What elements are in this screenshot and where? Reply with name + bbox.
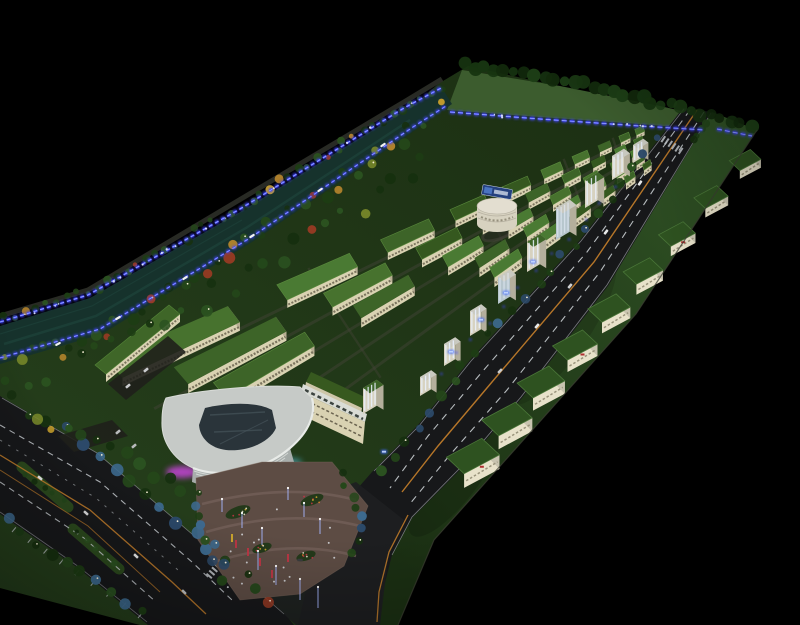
model-photo-stage (0, 0, 800, 625)
tree-light (82, 351, 84, 353)
pedestrian (276, 508, 278, 510)
street-led-dot (598, 202, 600, 204)
tree (438, 99, 445, 106)
flower-dot (262, 545, 264, 547)
tree (104, 552, 110, 558)
tree (368, 159, 377, 168)
tree (90, 342, 97, 349)
flower-dot (238, 514, 240, 516)
flower-dot (303, 496, 305, 498)
tree (191, 224, 199, 232)
led-sparkle (205, 228, 207, 230)
tree (191, 501, 200, 510)
tree (111, 464, 124, 477)
cylinder-roof (477, 198, 517, 214)
tree (127, 327, 136, 336)
tree (581, 225, 589, 233)
tree-light (177, 520, 179, 522)
pedestrian (232, 577, 234, 579)
model-photo (0, 0, 800, 625)
tree (59, 354, 66, 361)
led-sparkle (113, 280, 115, 282)
tree-light (585, 227, 587, 229)
tree (198, 222, 203, 227)
street-led-dot (440, 373, 442, 375)
tree (654, 134, 661, 141)
tree (138, 607, 146, 615)
led-sparkle (501, 114, 503, 116)
tree (4, 513, 15, 524)
led-sparkle (24, 314, 25, 315)
tree (201, 305, 213, 317)
tree (196, 490, 202, 496)
led-sparkle (55, 305, 56, 306)
yellow-banner (231, 534, 233, 542)
tree (32, 414, 43, 425)
blue-sign (479, 319, 483, 321)
tree (321, 219, 329, 227)
flower-dot (245, 507, 247, 509)
led-sparkle (166, 248, 168, 250)
led-sparkle (119, 277, 121, 279)
light-pole-top (287, 487, 289, 489)
tree (77, 336, 87, 346)
led-sparkle (142, 264, 144, 266)
street-led-dot (503, 305, 505, 307)
tree (93, 436, 101, 444)
flower-dot (257, 547, 259, 549)
tree (415, 153, 423, 161)
blue-sign (449, 351, 453, 353)
tree (77, 349, 86, 358)
tree (284, 205, 290, 211)
tree-light (359, 539, 361, 541)
tree-light (97, 577, 99, 579)
tree (200, 543, 212, 555)
tree (471, 349, 479, 357)
red-banner (271, 570, 273, 578)
tree (65, 344, 73, 352)
led-sparkle (161, 252, 163, 254)
tree (159, 320, 170, 331)
tree (245, 264, 253, 272)
flower-dot (318, 501, 320, 503)
led-sparkle (613, 123, 615, 125)
tree (111, 560, 118, 567)
tree (119, 598, 130, 609)
tree (169, 517, 182, 530)
tree (546, 269, 554, 277)
blue-sign (531, 261, 535, 263)
pedestrian (289, 576, 291, 578)
pedestrian (328, 542, 330, 544)
tree (25, 382, 33, 390)
light-pole-top (241, 512, 243, 514)
tree (399, 436, 409, 446)
tree (210, 540, 219, 549)
tree (121, 446, 133, 458)
tree (32, 541, 40, 549)
street-led-dot (535, 269, 537, 271)
tree (182, 280, 191, 289)
tree (337, 137, 345, 145)
tree (128, 313, 140, 325)
tree (416, 425, 424, 433)
light-pole-top (299, 578, 301, 580)
tree (195, 512, 203, 520)
flower-dot (265, 549, 267, 551)
tree (108, 336, 115, 343)
tree (146, 320, 154, 328)
light-pole-top (303, 502, 305, 504)
tree (337, 208, 343, 214)
tree (49, 490, 54, 495)
pedestrian (283, 567, 285, 569)
pedestrian (253, 541, 255, 543)
street-led-dot (489, 322, 491, 324)
led-sparkle (58, 303, 60, 305)
tree (496, 64, 509, 77)
light-pole-top (317, 586, 319, 588)
tree (594, 209, 603, 218)
tree-light (526, 296, 528, 298)
tree (340, 482, 347, 489)
led-sparkle (494, 114, 495, 115)
street-led-dot (455, 352, 457, 354)
tree (25, 412, 33, 420)
pedestrian (258, 539, 260, 541)
tree (452, 377, 460, 385)
tree (178, 307, 185, 314)
street-led-dot (516, 286, 518, 288)
led-sparkle (369, 126, 371, 128)
tree (436, 390, 447, 401)
tree-light (150, 322, 152, 324)
tree (398, 138, 410, 150)
pedestrian (273, 581, 275, 583)
tree (17, 354, 28, 365)
street-led-dot (469, 338, 471, 340)
flower-dot (311, 503, 313, 505)
tree (352, 504, 360, 512)
light-pole-top (257, 550, 259, 552)
light-pole-top (221, 498, 223, 500)
light-pole-top (275, 565, 277, 567)
tree (509, 67, 518, 76)
tree (138, 308, 145, 315)
tree (714, 113, 724, 123)
tree (106, 587, 116, 597)
tree (560, 76, 570, 86)
red-banner (259, 558, 261, 566)
tree (207, 555, 218, 566)
tree (42, 300, 48, 306)
tree (673, 100, 687, 114)
tree (75, 429, 86, 440)
tree (357, 524, 366, 533)
red-banner (287, 554, 289, 562)
tree-light (249, 572, 251, 574)
tree-light (215, 542, 217, 544)
tree (537, 280, 546, 289)
tree (287, 233, 299, 245)
tree (355, 537, 362, 544)
tree (347, 549, 356, 558)
pedestrian (246, 562, 248, 564)
street-led-dot (568, 238, 570, 240)
tree-light (146, 491, 148, 493)
flower-dot (312, 499, 314, 501)
tree (219, 559, 230, 570)
tree-light (187, 283, 189, 285)
red-banner (235, 540, 237, 548)
tree (123, 474, 136, 487)
street-led-dot (585, 218, 587, 220)
tree-light (36, 543, 38, 545)
pedestrian (284, 580, 286, 582)
led-sparkle (639, 125, 641, 127)
tree (425, 408, 434, 417)
tree-light (551, 270, 553, 272)
tree (690, 136, 698, 144)
tree (508, 306, 517, 315)
blue-sign (504, 292, 508, 294)
tree (278, 256, 290, 268)
tree (42, 485, 48, 491)
tree (203, 269, 212, 278)
led-sparkle (175, 245, 177, 247)
tree (207, 279, 216, 288)
tree (165, 473, 176, 484)
tree (92, 546, 98, 552)
tree (322, 192, 334, 204)
tree (656, 100, 666, 110)
tree (62, 498, 67, 503)
tree (385, 173, 396, 184)
tree (334, 186, 342, 194)
tree (527, 69, 541, 83)
tree (106, 442, 115, 451)
led-sparkle (346, 142, 348, 144)
tree (616, 89, 629, 102)
tree (361, 209, 371, 219)
tree-light (225, 562, 227, 564)
flower-dot (306, 554, 308, 556)
tree (91, 575, 101, 585)
tree (521, 294, 531, 304)
tree (257, 258, 268, 269)
flower-dot (303, 555, 305, 557)
pedestrian (241, 583, 243, 585)
tree (573, 243, 580, 250)
tree (308, 225, 317, 234)
tree-light (269, 600, 271, 602)
led-sparkle (501, 116, 503, 118)
pedestrian (329, 527, 331, 529)
warehouse-sign (581, 354, 585, 356)
tree (546, 73, 560, 87)
tree (41, 377, 51, 387)
tree (217, 575, 227, 585)
tree (577, 75, 591, 89)
warehouse-sign (480, 466, 484, 468)
tree (208, 217, 213, 222)
tree (75, 529, 79, 533)
led-sparkle (273, 187, 275, 189)
flower-dot (306, 556, 308, 558)
led-sparkle (651, 125, 653, 127)
street-led-dot (614, 186, 616, 188)
flower-dot (232, 515, 234, 517)
tree (349, 492, 359, 502)
tree (7, 390, 17, 400)
tree (455, 360, 465, 370)
pedestrian (333, 557, 335, 559)
tree (263, 597, 274, 608)
tree (65, 424, 73, 432)
tree (734, 117, 745, 128)
led-sparkle (642, 125, 644, 127)
flower-dot (243, 514, 245, 516)
tree-light (372, 162, 374, 164)
tree (391, 453, 400, 462)
tree (62, 557, 73, 568)
tree (15, 528, 23, 536)
tree (354, 171, 363, 180)
tree-light (208, 308, 210, 310)
tree (402, 122, 409, 129)
tree (408, 173, 418, 183)
red-banner (247, 548, 249, 556)
blue-sign (382, 451, 386, 453)
cylinder-landmark (477, 184, 517, 232)
led-sparkle (34, 312, 36, 314)
tree (47, 426, 54, 433)
tree (493, 318, 503, 328)
tree (200, 536, 209, 545)
tree (357, 511, 367, 521)
tree-light (244, 235, 246, 237)
tree (232, 289, 240, 297)
flower-dot (316, 496, 318, 498)
tree (643, 97, 656, 110)
tree-light (29, 413, 31, 415)
flower-dot (311, 557, 313, 559)
tree (627, 163, 636, 172)
pedestrian (227, 586, 229, 588)
tree (609, 196, 617, 204)
tree-light (206, 538, 208, 540)
tree (96, 452, 106, 462)
tree (250, 583, 261, 594)
tree-light (405, 439, 407, 441)
pedestrian (230, 550, 232, 552)
tree (174, 485, 186, 497)
tree (484, 330, 491, 337)
tree-light (101, 454, 103, 456)
tree (73, 288, 79, 294)
tree (196, 520, 205, 529)
tree (745, 120, 759, 134)
tree (47, 549, 59, 561)
tree (31, 479, 37, 485)
street-led-dot (550, 252, 552, 254)
tree (638, 149, 647, 158)
tree (420, 123, 426, 129)
tree (223, 252, 235, 264)
tree (73, 565, 84, 576)
tree-light (632, 165, 634, 167)
tree (555, 250, 564, 259)
car (297, 559, 303, 562)
tree-light (213, 558, 215, 560)
tree (376, 465, 387, 476)
tree-light (97, 438, 99, 440)
tree (64, 292, 70, 298)
tree-light (199, 491, 201, 493)
tree (147, 471, 160, 484)
flower-dot (302, 552, 304, 554)
light-pole-top (261, 527, 263, 529)
tree (376, 186, 384, 194)
tree (1, 376, 10, 385)
pedestrian (241, 534, 243, 536)
tree (339, 469, 347, 477)
tree (159, 294, 166, 301)
tree (133, 457, 146, 470)
light-pole-top (319, 518, 321, 520)
tree-light (218, 260, 220, 262)
tree (84, 537, 90, 543)
tree (139, 488, 151, 500)
tree (22, 472, 27, 477)
flower-dot (259, 548, 261, 550)
tree (245, 570, 253, 578)
tree (154, 502, 164, 512)
led-sparkle (626, 123, 628, 125)
